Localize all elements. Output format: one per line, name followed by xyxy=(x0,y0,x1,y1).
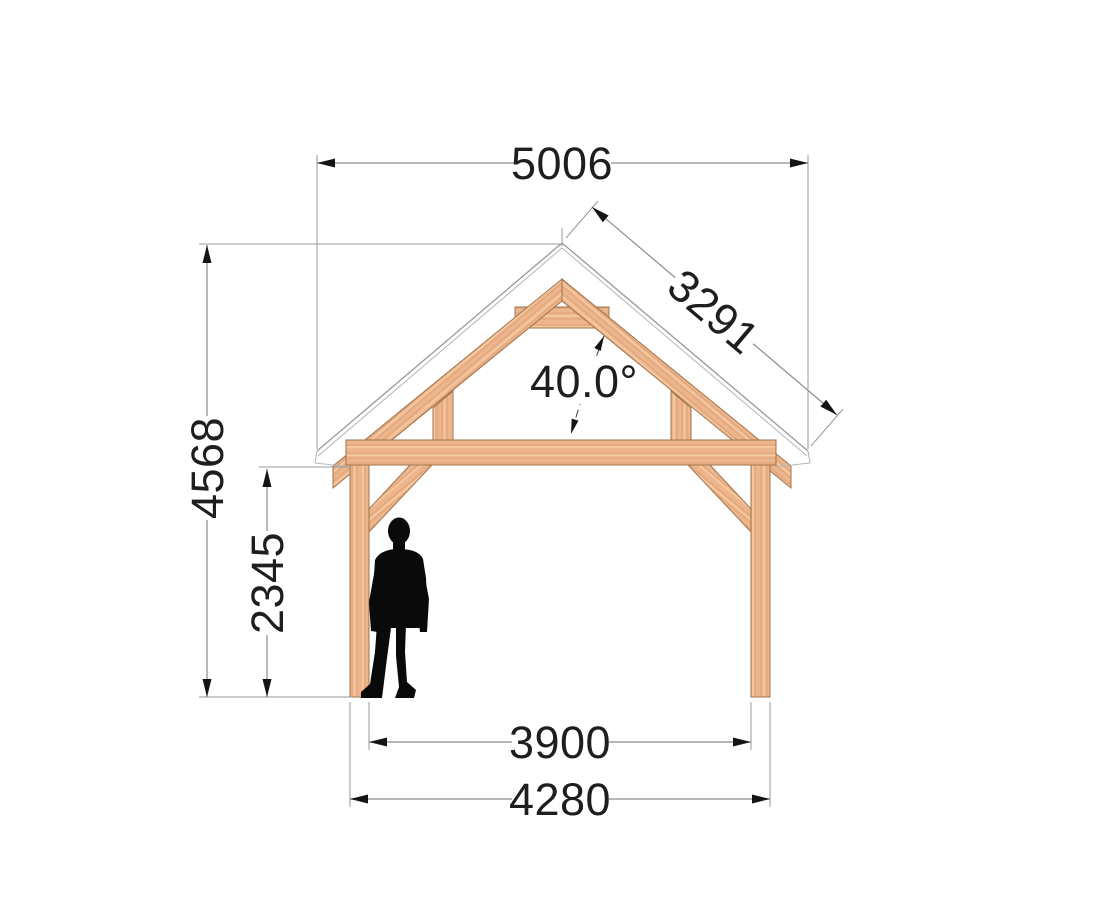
arrow-right xyxy=(752,795,770,804)
right-post xyxy=(751,465,770,697)
arrow-top xyxy=(263,469,272,487)
dim-clear-height-label: 2345 xyxy=(242,532,293,634)
dimension-clear-height: 2345 xyxy=(242,467,348,697)
arrow-to-rafter xyxy=(594,336,604,351)
human-silhouette xyxy=(361,518,429,699)
dim-roof-angle-label: 40.0° xyxy=(530,356,638,407)
elevation-drawing-page: 5006 3291 40.0° 4568 xyxy=(0,0,1096,913)
dim-total-height-label: 4568 xyxy=(182,417,233,519)
timber-frame-elevation-svg: 5006 3291 40.0° 4568 xyxy=(0,0,1096,913)
arrow-bottom xyxy=(263,679,272,697)
left-post xyxy=(350,465,369,697)
arrow-left xyxy=(350,795,368,804)
extension-line xyxy=(566,201,598,238)
arrow-left xyxy=(369,738,387,747)
dim-top-width-label: 5006 xyxy=(511,138,613,189)
dimension-inner-span: 3900 xyxy=(369,702,751,768)
silhouette-head xyxy=(388,518,410,545)
arrow-top xyxy=(203,245,212,263)
dimension-roof-angle: 40.0° xyxy=(530,336,638,434)
arrow-to-beam xyxy=(571,419,579,434)
arrow-lower xyxy=(820,400,837,415)
tie-beam xyxy=(346,440,776,465)
dim-inner-span-label: 3900 xyxy=(509,717,611,768)
dim-outer-span-label: 4280 xyxy=(509,774,611,825)
arrow-bottom xyxy=(203,679,212,697)
arrow-left xyxy=(317,159,335,168)
dim-roof-slope-label: 3291 xyxy=(658,259,769,364)
arrow-right xyxy=(733,738,751,747)
extension-line xyxy=(811,409,843,446)
arrow-upper xyxy=(592,207,609,222)
right-knee-brace xyxy=(688,465,751,532)
silhouette-right-leg xyxy=(395,624,416,698)
arrow-right xyxy=(790,159,808,168)
